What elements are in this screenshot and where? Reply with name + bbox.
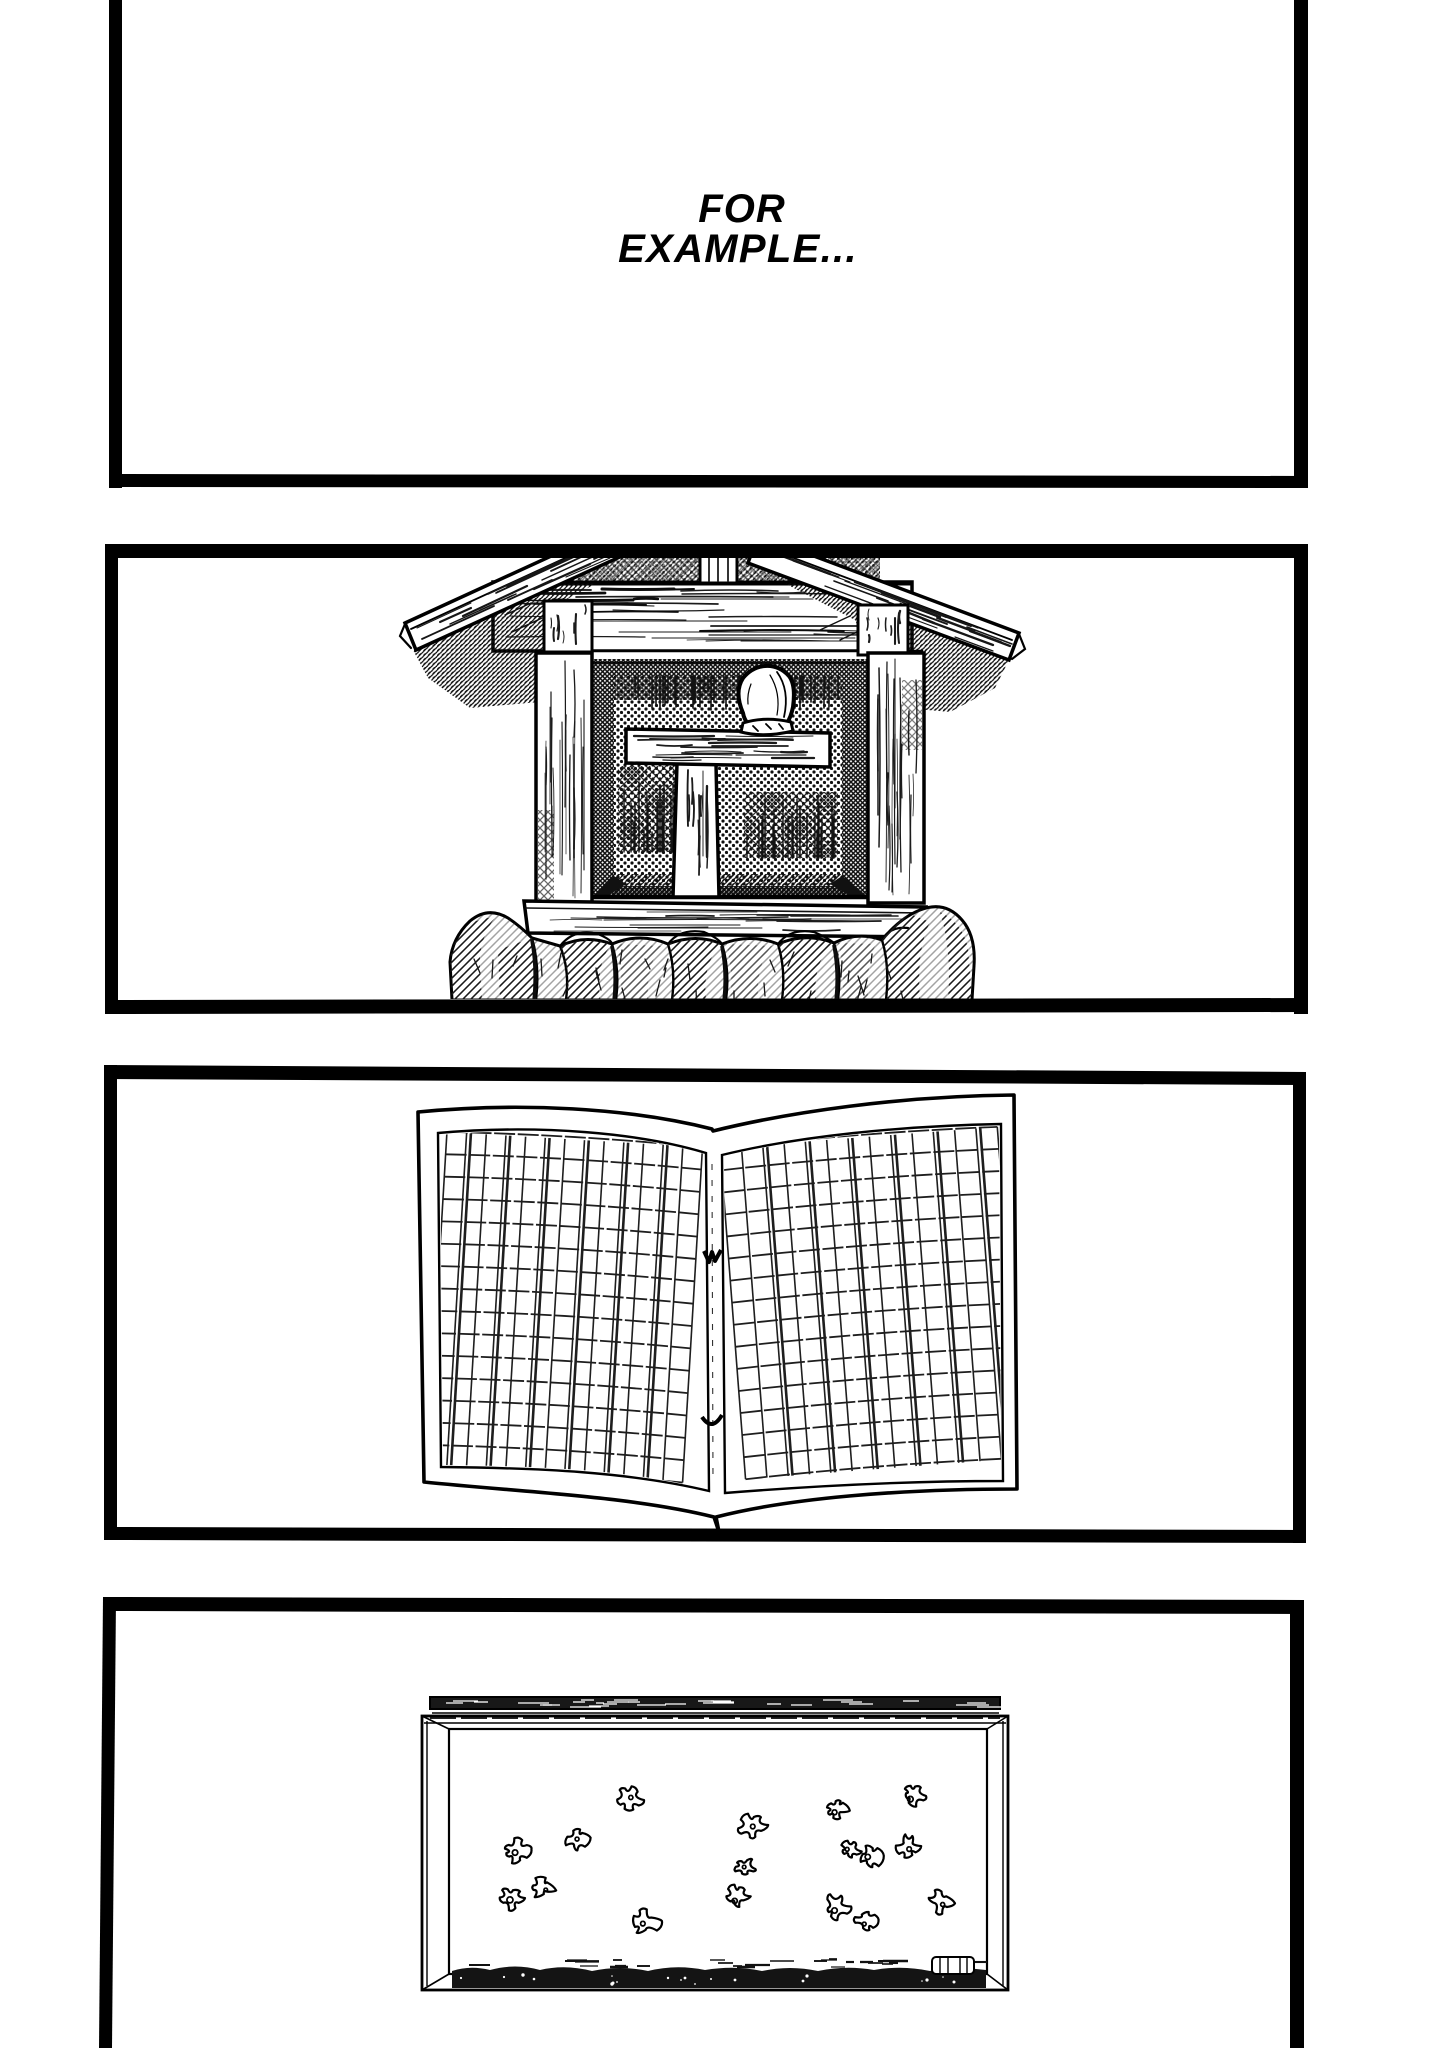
svg-text:EXAMPLE...: EXAMPLE... [618,227,858,271]
svg-text:FOR: FOR [698,187,785,231]
